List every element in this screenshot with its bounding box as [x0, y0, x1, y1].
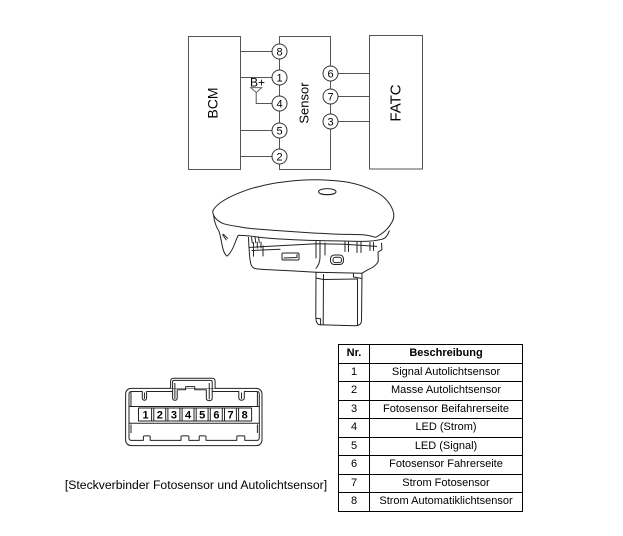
svg-text:Sensor: Sensor	[296, 82, 311, 124]
svg-text:6: 6	[327, 68, 333, 80]
svg-text:1: 1	[276, 72, 282, 84]
svg-text:7: 7	[327, 91, 333, 103]
svg-text:8: 8	[242, 410, 248, 422]
svg-text:5: 5	[199, 410, 205, 422]
svg-text:2: 2	[276, 151, 282, 163]
svg-text:3: 3	[327, 116, 333, 128]
svg-text:5: 5	[276, 125, 282, 137]
svg-text:BCM: BCM	[205, 87, 221, 118]
svg-text:3: 3	[171, 410, 177, 422]
svg-text:FATC: FATC	[387, 84, 404, 121]
svg-text:8: 8	[276, 46, 282, 58]
svg-text:6: 6	[213, 410, 219, 422]
svg-text:4: 4	[276, 98, 282, 110]
svg-text:4: 4	[185, 410, 192, 422]
svg-text:2: 2	[157, 410, 163, 422]
svg-text:1: 1	[143, 410, 149, 422]
svg-text:7: 7	[227, 410, 233, 422]
